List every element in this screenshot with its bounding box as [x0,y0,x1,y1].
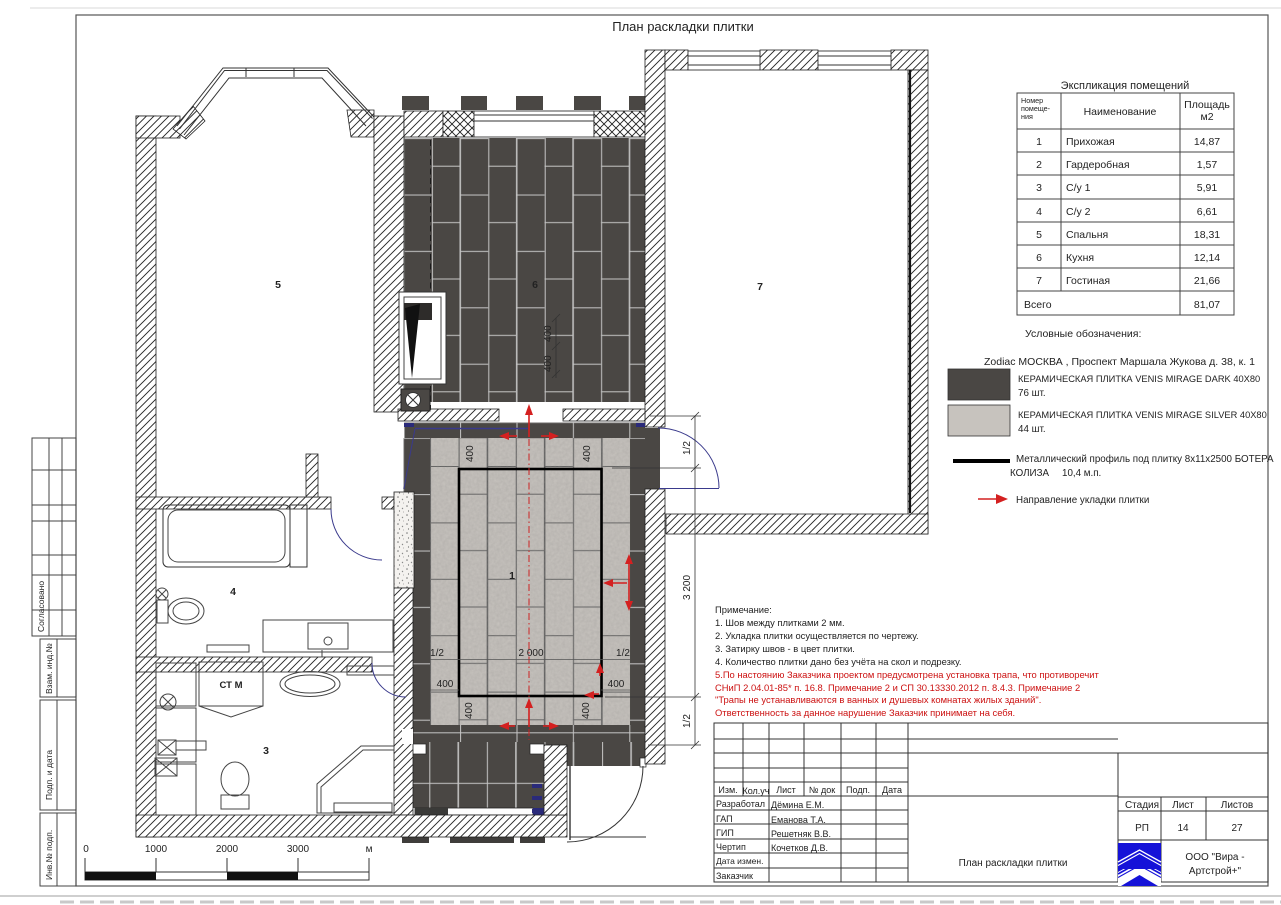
svg-text:1000: 1000 [145,844,168,855]
svg-text:Спальня: Спальня [1066,229,1108,241]
svg-text:3: 3 [263,745,269,757]
svg-text:1/2: 1/2 [682,441,693,455]
svg-text:КЕРАМИЧЕСКАЯ ПЛИТКА VENIS MIRA: КЕРАМИЧЕСКАЯ ПЛИТКА VENIS MIRAGE SILVER … [1018,410,1267,420]
svg-text:Листов: Листов [1221,800,1254,811]
svg-text:4. Количество плитки дано без: 4. Количество плитки дано без учёта на с… [715,656,962,667]
svg-text:400: 400 [608,679,625,690]
svg-text:Дата измен.: Дата измен. [716,856,763,866]
svg-text:Подп.: Подп. [846,785,870,795]
svg-text:14,87: 14,87 [1194,136,1220,148]
svg-text:Прихожая: Прихожая [1066,136,1115,148]
svg-text:Артстрой+": Артстрой+" [1189,866,1242,877]
svg-text:2000: 2000 [216,844,239,855]
svg-text:"Трапы не устанавливаются в ва: "Трапы не устанавливаются в ванных и душ… [715,694,1041,705]
svg-text:С/у 1: С/у 1 [1066,182,1091,194]
svg-text:Еманова Т.А.: Еманова Т.А. [771,815,826,825]
svg-text:400: 400 [464,702,475,719]
svg-text:Инв.№ подп.: Инв.№ подп. [44,830,54,880]
svg-text:0: 0 [83,844,89,855]
svg-text:Zodiac МОСКВА , Проспект Марша: Zodiac МОСКВА , Проспект Маршала Жукова … [984,356,1255,368]
svg-text:3 200: 3 200 [682,575,693,600]
svg-text:м2: м2 [1200,111,1213,123]
svg-text:СНиП 2.04.01-85* п. 16.8. Прим: СНиП 2.04.01-85* п. 16.8. Примечание 2 и… [715,682,1080,693]
svg-text:ООО "Вира -: ООО "Вира - [1185,852,1244,863]
svg-text:21,66: 21,66 [1194,275,1220,287]
svg-text:5: 5 [1036,229,1042,241]
svg-text:1: 1 [509,570,515,582]
svg-text:1/2: 1/2 [430,648,444,659]
svg-text:Экспликация помещений: Экспликация помещений [1061,80,1190,92]
svg-text:7: 7 [1036,275,1042,287]
svg-text:12,14: 12,14 [1194,252,1220,264]
svg-text:ГИП: ГИП [716,828,734,838]
svg-text:Взам. инд.№: Взам. инд.№ [44,643,54,694]
svg-text:Заказчик: Заказчик [716,871,753,881]
svg-text:Дёмина Е.М.: Дёмина Е.М. [771,800,824,810]
svg-text:Решетняк В.В.: Решетняк В.В. [771,829,831,839]
svg-text:Всего: Всего [1024,299,1052,311]
svg-text:Стадия: Стадия [1125,800,1159,811]
svg-text:РП: РП [1135,823,1149,834]
svg-text:400: 400 [582,445,593,462]
svg-text:Лист: Лист [776,785,796,795]
svg-text:6,61: 6,61 [1197,206,1218,218]
svg-text:Кочетков Д.В.: Кочетков Д.В. [771,843,828,853]
svg-text:Гардеробная: Гардеробная [1066,159,1130,171]
svg-text:План раскладки плитки: План раскладки плитки [612,19,754,34]
svg-text:Дата: Дата [882,785,902,795]
svg-text:Изм.: Изм. [718,785,737,795]
svg-text:ния: ния [1021,112,1033,121]
svg-text:10,4 м.п.: 10,4 м.п. [1062,468,1101,479]
svg-text:7: 7 [757,281,763,293]
svg-text:№ док: № док [809,785,835,795]
svg-text:Ответственность за данное нару: Ответственность за данное нарушение Зака… [715,707,1015,718]
svg-text:м: м [366,844,373,855]
svg-text:1. Шов между плитками 2 мм.: 1. Шов между плитками 2 мм. [715,617,845,628]
svg-text:Направление укладки плитки: Направление укладки плитки [1016,495,1149,506]
svg-text:3. Затирку швов - в цвет плит: 3. Затирку швов - в цвет плитки. [715,643,855,654]
svg-text:6: 6 [532,279,538,291]
svg-text:1,57: 1,57 [1197,159,1218,171]
svg-text:5,91: 5,91 [1197,182,1218,194]
svg-text:Кухня: Кухня [1066,252,1094,264]
svg-text:2: 2 [1036,159,1042,171]
svg-text:4: 4 [230,586,236,598]
svg-text:76 шт.: 76 шт. [1018,388,1046,399]
svg-text:Чертип: Чертип [716,842,746,852]
svg-text:Подп. и дата: Подп. и дата [44,750,54,800]
svg-text:2. Укладка плитки осуществляе: 2. Укладка плитки осуществляется по черт… [715,630,919,641]
svg-text:С/у 2: С/у 2 [1066,206,1091,218]
svg-text:400: 400 [543,355,554,372]
svg-text:5: 5 [275,279,281,291]
svg-text:Разработал: Разработал [716,799,765,809]
svg-text:18,31: 18,31 [1194,229,1220,241]
svg-text:1/2: 1/2 [682,714,693,728]
svg-text:400: 400 [437,679,454,690]
svg-text:400: 400 [465,445,476,462]
svg-text:Наименование: Наименование [1084,106,1157,118]
svg-text:Лист: Лист [1172,800,1194,811]
svg-text:3000: 3000 [287,844,310,855]
svg-text:4: 4 [1036,206,1042,218]
svg-text:ГАП: ГАП [716,814,733,824]
svg-text:Условные обозначения:: Условные обозначения: [1025,328,1141,340]
svg-text:Площадь: Площадь [1184,99,1230,111]
svg-text:5.По настоянию Заказчика проек: 5.По настоянию Заказчика проектом предус… [715,669,1100,680]
svg-text:14: 14 [1177,823,1189,834]
svg-text:План раскладки плитки: План раскладки плитки [959,858,1068,869]
svg-text:400: 400 [543,325,554,342]
svg-text:1: 1 [1036,136,1042,148]
svg-text:КОЛИЗА: КОЛИЗА [1010,468,1049,479]
svg-text:3: 3 [1036,182,1042,194]
svg-text:1/2: 1/2 [616,648,630,659]
svg-text:Металлический профиль под плит: Металлический профиль под плитку 8х11х25… [1016,454,1274,465]
svg-text:Примечание:: Примечание: [715,604,772,615]
svg-text:2 000: 2 000 [518,648,543,659]
svg-text:81,07: 81,07 [1194,299,1220,311]
svg-text:6: 6 [1036,252,1042,264]
svg-text:КЕРАМИЧЕСКАЯ ПЛИТКА VENIS MIRA: КЕРАМИЧЕСКАЯ ПЛИТКА VENIS MIRAGE DARK 40… [1018,374,1260,384]
svg-text:44 шт.: 44 шт. [1018,424,1046,435]
svg-text:Гостиная: Гостиная [1066,275,1110,287]
svg-text:СТ М: СТ М [220,680,243,691]
svg-text:27: 27 [1231,823,1243,834]
svg-text:400: 400 [581,702,592,719]
svg-text:Согласовано: Согласовано [36,581,46,632]
svg-text:Кол.уч: Кол.уч [743,786,770,796]
